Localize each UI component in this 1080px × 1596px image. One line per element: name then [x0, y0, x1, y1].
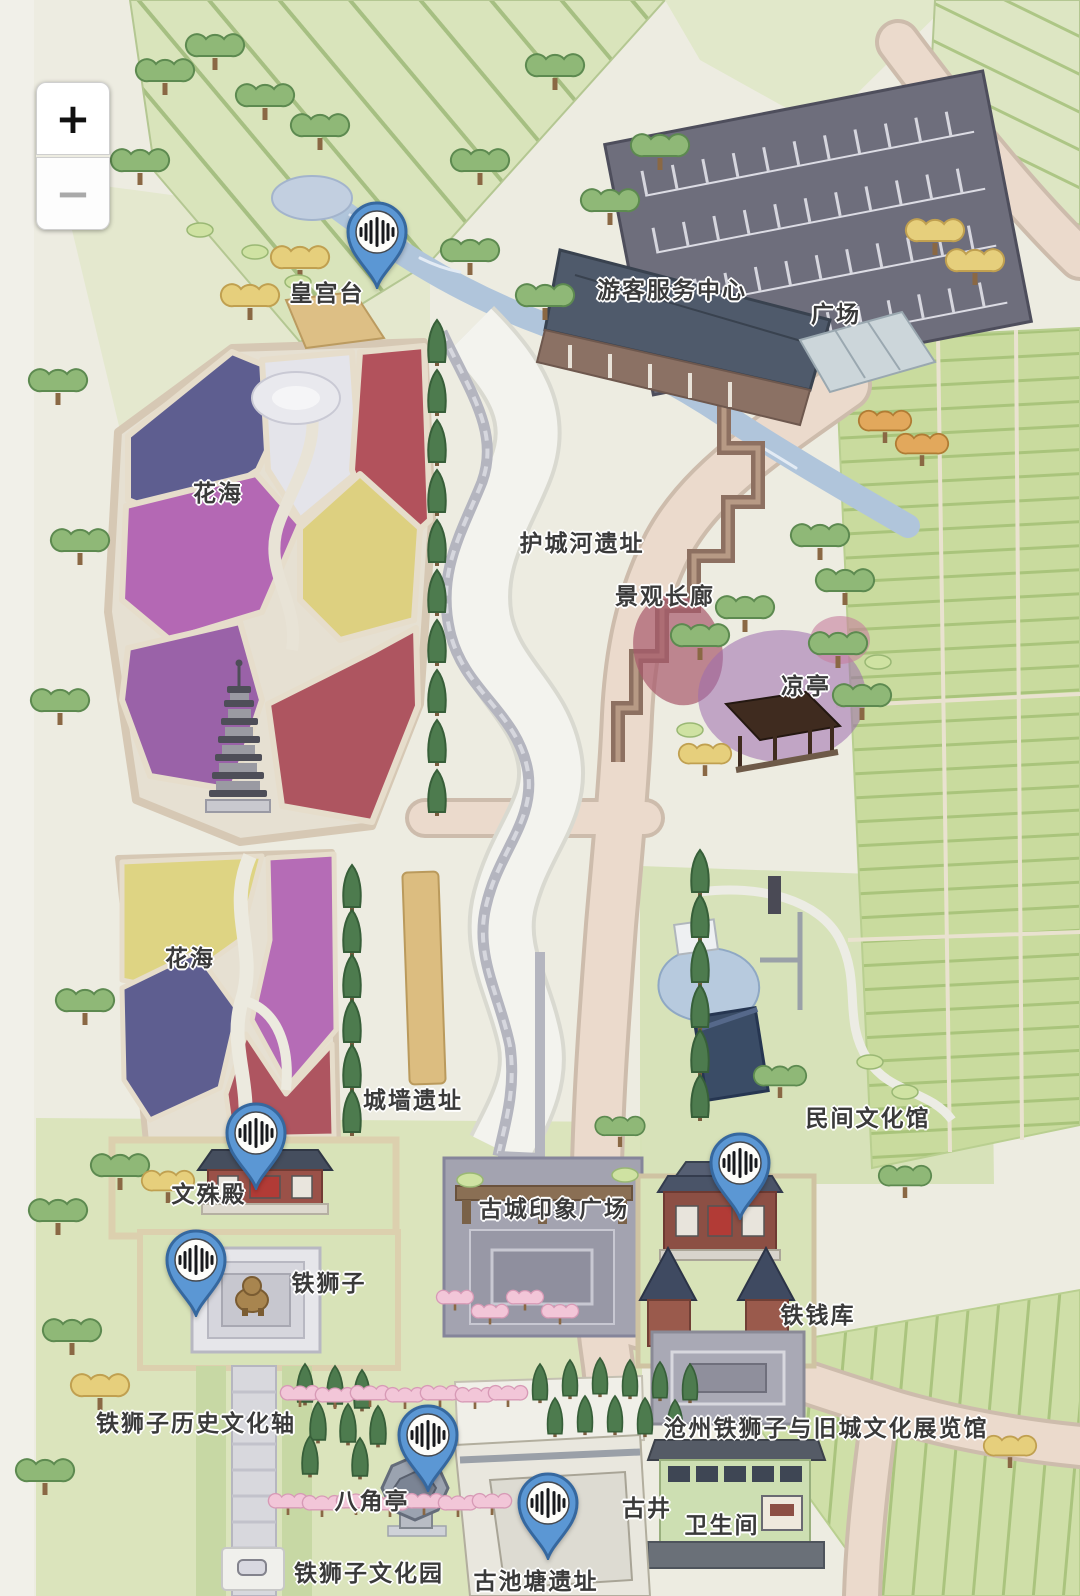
- label-ancient-city-impression-plaza: 古城印象广场: [479, 1190, 629, 1224]
- label-city-wall-ruins: 城墙遗址: [363, 1081, 463, 1115]
- label-iron-lion-history-culture-axis: 铁狮子历史文化轴: [96, 1404, 296, 1438]
- flower-sea-south-field: [118, 852, 338, 1142]
- label-restroom: 卫生间: [685, 1506, 760, 1540]
- audio-pin-icon: [707, 1130, 773, 1220]
- label-folk-culture-hall: 民间文化馆: [806, 1099, 931, 1133]
- audio-pin-icon: [395, 1402, 461, 1492]
- city-wall-ruins-strip: [402, 871, 445, 1084]
- farmland-east: [835, 328, 1080, 1168]
- label-iron-lion-culture-park: 铁狮子文化园: [294, 1554, 444, 1588]
- label-flower-sea-north: 花海: [193, 474, 243, 508]
- label-ancient-well: 古井: [622, 1489, 672, 1523]
- label-cangzhou-exhibition-hall: 沧州铁狮子与旧城文化展览馆: [664, 1409, 989, 1443]
- label-ancient-pond-ruins: 古池塘遗址: [474, 1562, 599, 1596]
- audio-pin-icon: [344, 199, 410, 289]
- audio-pin-icon: [515, 1470, 581, 1560]
- audio-pin-icon: [223, 1100, 289, 1190]
- audio-pin-iron-coin-vault[interactable]: [707, 1130, 773, 1220]
- restroom-building: [648, 1440, 825, 1568]
- label-flower-sea-south: 花海: [165, 939, 215, 973]
- audio-pin-octagonal-pavilion[interactable]: [395, 1402, 461, 1492]
- map-artwork: [0, 0, 1080, 1596]
- label-iron-coin-vault: 铁钱库: [781, 1296, 856, 1330]
- audio-pin-wenshu-hall[interactable]: [223, 1100, 289, 1190]
- label-visitor-service-center: 游客服务中心: [597, 271, 747, 305]
- label-iron-lion: 铁狮子: [292, 1264, 367, 1298]
- label-plaza: 广场: [811, 295, 861, 329]
- label-moat-ruins: 护城河遗址: [520, 524, 645, 558]
- label-landscape-corridor: 景观长廊: [615, 577, 715, 611]
- illustrated-park-map: 皇宫台 游客服务中心 广场 花海 护城河遗址 景观长廊 凉亭 花海 城墙遗址 民…: [0, 0, 1080, 1596]
- audio-pin-huang-gong-tai[interactable]: [344, 199, 410, 289]
- audio-pin-icon: [163, 1227, 229, 1317]
- audio-pin-iron-lion[interactable]: [163, 1227, 229, 1317]
- flower-sea-north-field: [108, 342, 432, 842]
- zoom-in-button[interactable]: +: [36, 82, 110, 155]
- audio-pin-ancient-pond-ruins[interactable]: [515, 1470, 581, 1560]
- zoom-out-button[interactable]: −: [36, 157, 110, 230]
- label-cool-pavilion: 凉亭: [781, 667, 831, 701]
- zoom-controls: + −: [36, 82, 110, 230]
